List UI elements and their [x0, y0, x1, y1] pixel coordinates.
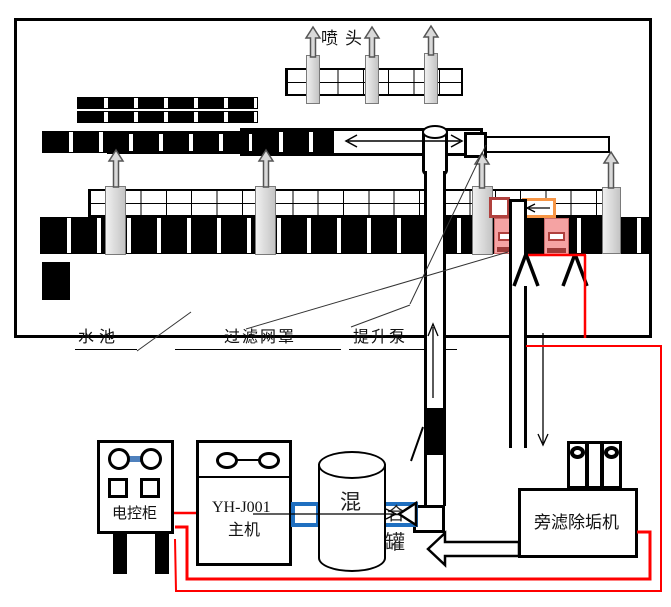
down-flow-arrow — [538, 333, 548, 445]
lift-pump-junction-box — [464, 132, 487, 158]
cabinet-leg-left — [113, 534, 127, 574]
host-model-label: YH-J001 — [212, 500, 271, 516]
lift-pump-unit-2 — [544, 218, 569, 255]
pump-column-4 — [602, 187, 621, 254]
filter-mesh-band-upper-row1 — [77, 97, 258, 109]
cabinet-switch-right — [140, 478, 160, 498]
pump-column-2 — [255, 186, 276, 255]
blue-connector-left — [291, 502, 320, 527]
spray-riser-2 — [365, 55, 379, 104]
return-hollow-arrow — [428, 533, 519, 565]
main-pipe — [424, 170, 446, 506]
duct-left — [107, 131, 255, 154]
orange-highlight-box — [522, 198, 556, 218]
host-knob-right — [258, 452, 280, 469]
pump-base — [547, 248, 566, 253]
spray-riser-1 — [306, 55, 320, 104]
valve-handle — [411, 427, 423, 461]
filter-mesh-label: 过滤网罩 — [224, 330, 296, 346]
host-divider — [198, 476, 290, 478]
schematic-diagram: 水池 过滤网罩 提升泵 喷头 电控柜 YH-J001 — [0, 0, 671, 607]
duct-right-thin — [483, 136, 610, 153]
spray-head-label: 喷头 — [321, 30, 369, 47]
pool-label: 水池 — [78, 330, 120, 346]
control-cabinet-label: 电控柜 — [112, 506, 157, 521]
suction-pipe — [509, 199, 527, 448]
filter-mesh-block-single — [42, 262, 70, 300]
lift-pump-label: 提升泵 — [353, 330, 407, 346]
pool-outline — [14, 18, 652, 338]
filter-mesh-label-underline — [175, 349, 341, 350]
cabinet-lamp-right — [140, 448, 162, 470]
pool-label-underline — [75, 349, 137, 350]
mixing-tank-top — [318, 451, 386, 479]
side-filter-label: 旁滤除垢机 — [534, 514, 619, 531]
host-knob-left — [216, 452, 238, 469]
side-filter-port-right — [604, 446, 619, 459]
cabinet-leg-right — [155, 534, 169, 574]
cabinet-lamp-left — [108, 448, 130, 470]
filter-mesh-band-upper-row2 — [77, 111, 258, 123]
main-pipe-cylinder-top — [422, 125, 448, 139]
spray-riser-3 — [424, 53, 438, 104]
cabinet-switch-left — [108, 478, 128, 498]
mixing-tank-char-2: 合 — [387, 505, 405, 523]
pump-window — [548, 232, 565, 241]
pump-column-1 — [105, 186, 126, 255]
pipe-valve — [424, 408, 446, 455]
host-name-label: 主机 — [228, 523, 260, 539]
mixing-tank-char-1: 混 — [340, 492, 361, 513]
maroon-highlight-box — [489, 197, 510, 218]
side-filter-port-left — [570, 446, 585, 459]
mixing-tank-char-3: 罐 — [385, 533, 405, 553]
